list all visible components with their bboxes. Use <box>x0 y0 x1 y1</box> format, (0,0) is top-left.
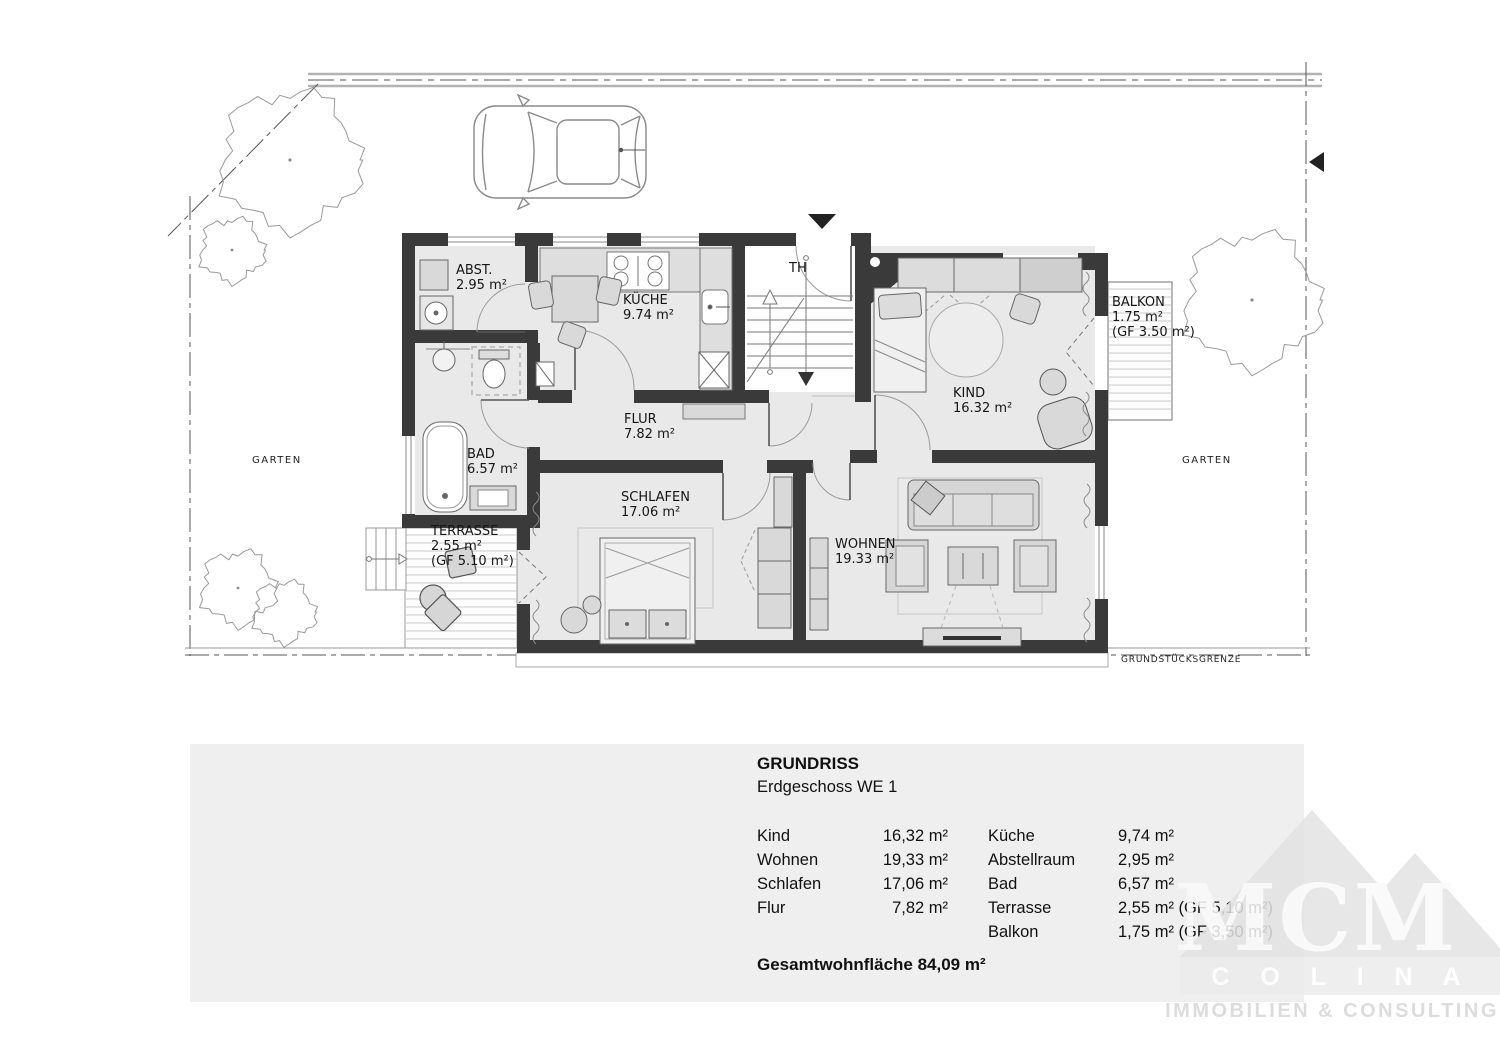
area-row-value: 9,74 m² <box>1118 827 1174 846</box>
room-label-abst: ABST. 2.95 m² <box>456 263 507 293</box>
logo-roof-icon <box>1322 853 1500 957</box>
site-and-floor-plan <box>0 0 1500 735</box>
area-row-label: Terrasse <box>988 899 1051 918</box>
garden-label-left: GARTEN <box>252 455 302 466</box>
washbasin-icon <box>433 349 455 371</box>
area-row-value: 6,57 m² <box>1118 875 1174 894</box>
wardrobe <box>758 528 791 628</box>
room-name: FLUR <box>624 412 675 427</box>
room-label-balkon: BALKON 1.75 m² (GF 3.50 m²) <box>1112 295 1195 340</box>
entrance-arrow-icon <box>808 214 836 229</box>
round-rug <box>929 303 1003 377</box>
room-area: 9.74 m² <box>623 308 674 323</box>
area-row-value: 2,55 m² (GF 5,10 m²) <box>1118 899 1273 918</box>
room-area: 17.06 m² <box>621 505 690 520</box>
room-area: 6.57 m² <box>467 462 518 477</box>
room-label-flur: FLUR 7.82 m² <box>624 412 675 442</box>
room-name: BAD <box>467 447 518 462</box>
tree-icon <box>200 549 279 631</box>
room-label-kueche: KÜCHE 9.74 m² <box>623 293 674 323</box>
room-label-kind: KIND 16.32 m² <box>953 386 1012 416</box>
car-icon <box>474 95 646 209</box>
toilet-icon <box>483 360 505 388</box>
area-row-value: 2,95 m² <box>1118 851 1174 870</box>
hall-sideboard <box>683 404 745 419</box>
logo-tagline: IMMOBILIEN & CONSULTING <box>1165 1000 1499 1022</box>
area-row-value: 16,32 m² <box>795 827 948 846</box>
kitchen-table <box>552 276 598 322</box>
area-row-label: Küche <box>988 827 1035 846</box>
area-row-label: Bad <box>988 875 1017 894</box>
room-label-schlafen: SCHLAFEN 17.06 m² <box>621 490 690 520</box>
floorplan-page: { "plan": { "rooms": { "abst": {"name": … <box>0 0 1500 1060</box>
coffee-table <box>948 547 998 585</box>
room-area-gf: (GF 5.10 m²) <box>431 554 514 569</box>
room-label-wohnen: WOHNEN 19.33 m² <box>835 537 896 567</box>
room-label-bad: BAD 6.57 m² <box>467 447 518 477</box>
total-area: Gesamtwohnfläche 84,09 m² <box>757 955 986 975</box>
garden-label-right: GARTEN <box>1182 455 1232 466</box>
boundary-label: GRUNDSTÜCKSGRENZE <box>1121 655 1241 665</box>
room-area: 16.32 m² <box>953 401 1012 416</box>
area-row-label: Balkon <box>988 923 1038 942</box>
shelf <box>810 538 828 630</box>
area-row-label: Kind <box>757 827 790 846</box>
panel-title: GRUNDRISS <box>757 754 859 774</box>
building-footer-line <box>516 653 1108 667</box>
room-name: TERRASSE <box>431 524 514 539</box>
room-name: KIND <box>953 386 1012 401</box>
tree-icon <box>219 87 364 238</box>
room-name: TH <box>789 261 807 276</box>
info-panel <box>190 744 1304 1002</box>
room-area: 2.95 m² <box>456 278 507 293</box>
room-name: WOHNEN <box>835 537 896 552</box>
room-name: ABST. <box>456 263 507 278</box>
tree-icon <box>199 216 267 286</box>
room-label-terrasse: TERRASSE 2.55 m² (GF 5.10 m²) <box>431 524 514 569</box>
room-area: 7.82 m² <box>624 427 675 442</box>
room-name: SCHLAFEN <box>621 490 690 505</box>
north-arrow-icon <box>1309 152 1324 172</box>
panel-subtitle: Erdgeschoss WE 1 <box>757 778 897 797</box>
room-area-gf: (GF 3.50 m²) <box>1112 325 1195 340</box>
area-row-value: 1,75 m² (GF 3,50 m²) <box>1118 923 1273 942</box>
area-row-label: Abstellraum <box>988 851 1075 870</box>
room-name: KÜCHE <box>623 293 674 308</box>
area-row-label: Flur <box>757 899 785 918</box>
room-area: 19.33 m² <box>835 552 896 567</box>
room-area: 2.55 m² <box>431 539 514 554</box>
area-row-value: 7,82 m² <box>795 899 948 918</box>
room-area: 1.75 m² <box>1112 310 1195 325</box>
room-name: BALKON <box>1112 295 1195 310</box>
area-row-value: 19,33 m² <box>795 851 948 870</box>
room-label-th: TH <box>789 261 807 276</box>
tree-icon <box>1183 230 1324 376</box>
area-row-value: 17,06 m² <box>795 875 948 894</box>
tree-icon <box>252 579 318 647</box>
